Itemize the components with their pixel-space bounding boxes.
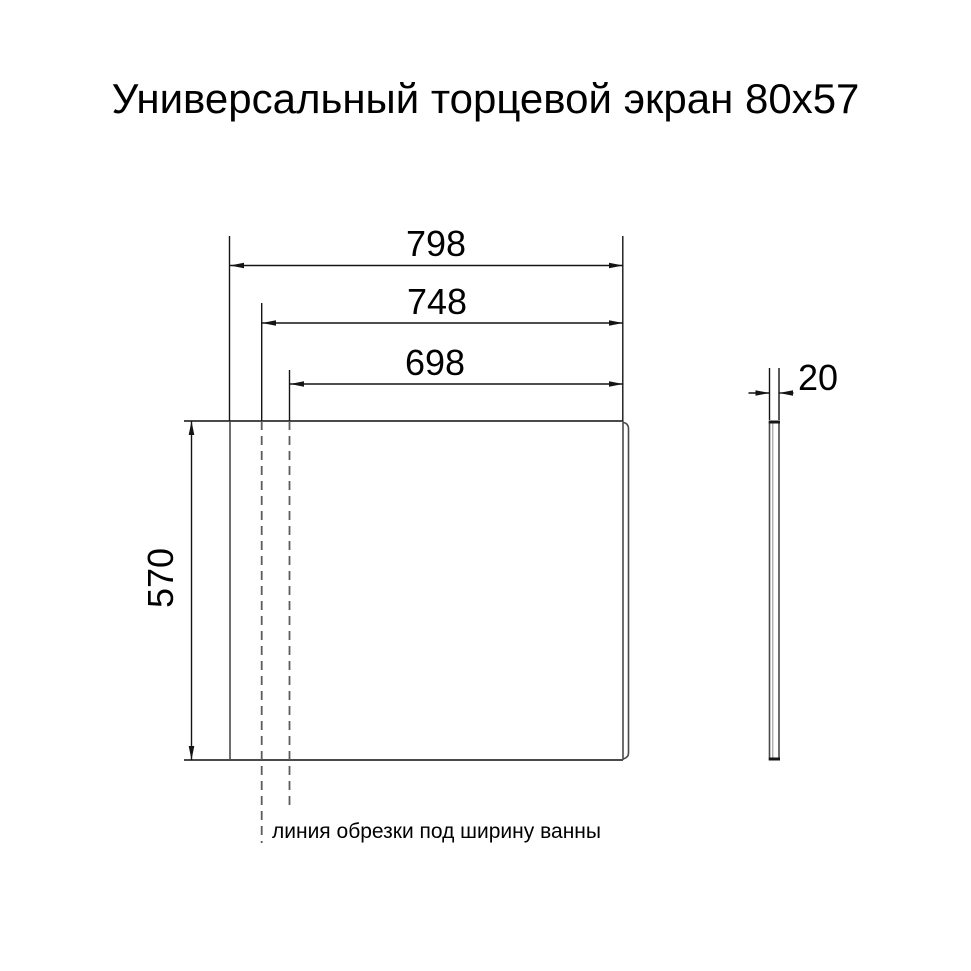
height-dimension [189,421,195,760]
dim-value-698: 698 [375,345,495,381]
cut-line-label: линия обрезки под ширину ванны [272,819,601,844]
arrow-698-right [609,381,623,387]
arrow-570-top [189,421,195,435]
dim-value-20: 20 [778,360,858,396]
arrow-570-bottom [189,746,195,760]
panel-front-view [184,421,629,760]
panel-right-flange-edge [624,423,629,759]
panel-side-view [769,422,780,760]
dim-value-748: 748 [377,284,497,320]
arrow-20-left [756,390,770,396]
cut-lines [262,421,290,843]
side-view-outline [770,422,780,760]
dim-value-570: 570 [143,518,183,638]
arrow-748-right [609,320,623,326]
arrow-798-left [230,263,244,269]
arrow-698-left [290,381,304,387]
dim-value-798: 798 [376,226,496,262]
arrow-798-right [609,263,623,269]
arrow-748-left [262,320,276,326]
technical-drawing-canvas: Универсальный торцевой экран 80х57 [0,0,971,971]
